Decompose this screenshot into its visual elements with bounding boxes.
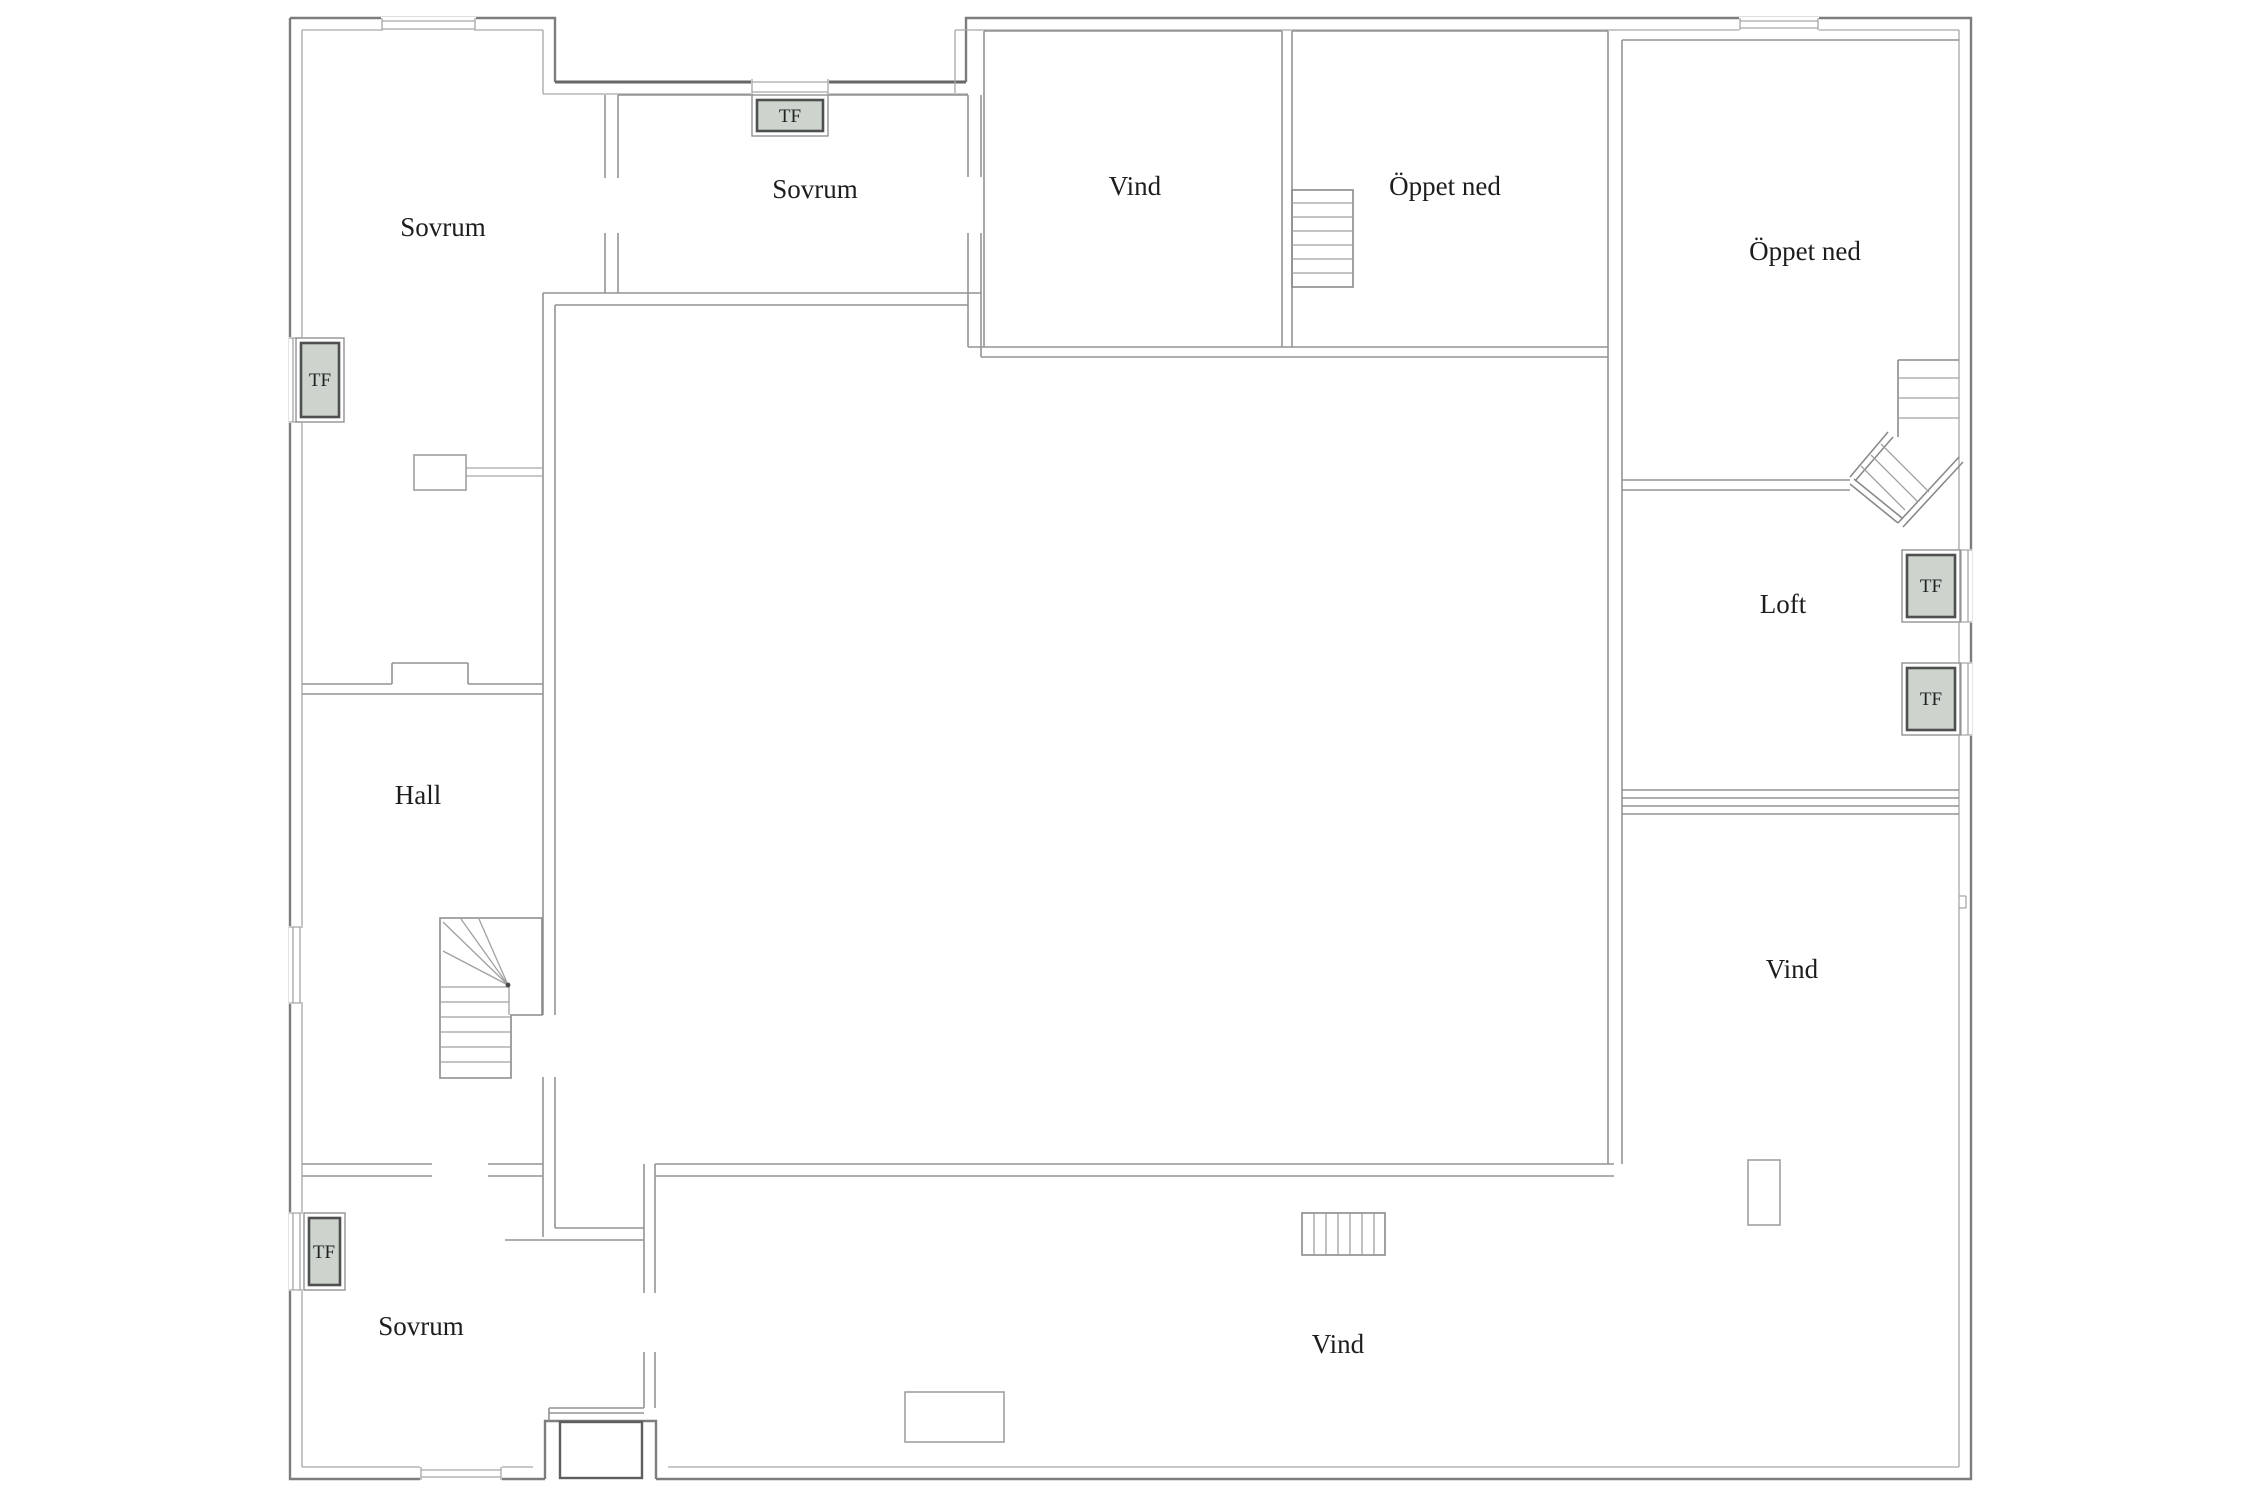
chimney-left-connector: [466, 468, 543, 476]
wall-right-jog: [1959, 896, 1966, 908]
room-label-vind-bottom: Vind: [1312, 1329, 1365, 1359]
entry-notch-inset: [560, 1422, 642, 1478]
chimney-right: [1748, 1160, 1780, 1225]
wall-central-top: [543, 293, 981, 305]
room-label-loft: Loft: [1760, 589, 1807, 619]
building-outline: [290, 18, 1971, 1479]
room-label-sovrum-top-mid: Sovrum: [772, 174, 858, 204]
stair-bottom-middle: [1302, 1213, 1385, 1255]
wall-corridor-bottom: [505, 1228, 644, 1240]
skylight-tf-left-bottom: TF: [304, 1213, 345, 1290]
wall-vind-oppet-divider: [1282, 31, 1292, 347]
wall-toprooms-bottom: [968, 347, 1608, 357]
room-label-hall: Hall: [395, 780, 442, 810]
wall-b: [644, 1164, 655, 1408]
wall-oppet-right-bottom: [1622, 480, 1850, 490]
fixtures: [392, 455, 1780, 1478]
wall-hall-right: [543, 293, 555, 1237]
skylight-tf-right-upper: TF: [1902, 550, 1960, 622]
window-top-left: [381, 17, 476, 32]
skylight-tf-right-lower: TF: [1902, 663, 1960, 735]
outline-inner-lines: [302, 30, 1959, 1467]
room-label-sovrum-top-left: Sovrum: [400, 212, 486, 242]
room-label-oppet-ned-top: Öppet ned: [1389, 171, 1501, 201]
wall-hall-bottom: [302, 1164, 543, 1176]
wall-hall-top: [302, 684, 543, 694]
wall-sovrum-mid-left: [605, 95, 618, 293]
chimney-hall-bump: [392, 663, 468, 684]
skylight-tf-left-top: TF: [296, 338, 344, 422]
room-label-oppet-ned-right: Öppet ned: [1749, 236, 1861, 266]
window-left-3: [289, 1212, 303, 1291]
chimney-left: [414, 455, 466, 490]
interior-walls: [302, 31, 1966, 1421]
wall-central-bottom: [655, 1164, 1614, 1176]
stair-hall: [440, 918, 542, 1078]
wall-loft-vind: [1622, 790, 1959, 814]
wall-sovrum-mid-right: [968, 95, 981, 357]
room-label-vind-top: Vind: [1109, 171, 1162, 201]
room-label-sovrum-bottom: Sovrum: [378, 1311, 464, 1341]
stair-top-middle: [1292, 190, 1353, 287]
floorplan-canvas: TF TF TF TF TF Sovrum Sovrum Vind Öppet …: [0, 0, 2250, 1500]
tf-label: TF: [779, 106, 801, 127]
window-top-right: [1739, 17, 1819, 31]
floorplan-drawing: TF TF TF TF TF Sovrum Sovrum Vind Öppet …: [0, 0, 2250, 1500]
wall-notch-top: [549, 1408, 644, 1421]
wall-toprooms-top: [984, 31, 1608, 347]
outline-outer: [290, 18, 1971, 1479]
stair-hall-pivot: [506, 983, 511, 988]
windows: [289, 17, 1972, 1482]
roof-hatch: [905, 1392, 1004, 1442]
room-labels: Sovrum Sovrum Vind Öppet ned Öppet ned L…: [378, 171, 1861, 1359]
stair-winder-right: [1850, 360, 1963, 527]
window-left-2: [289, 926, 303, 1004]
room-label-vind-right: Vind: [1766, 954, 1819, 984]
tf-label: TF: [1920, 576, 1942, 597]
tf-label: TF: [313, 1242, 335, 1263]
skylight-tf-top-mid: TF: [752, 95, 828, 136]
window-bottom: [420, 1466, 502, 1482]
tf-label: TF: [309, 370, 331, 391]
tf-label: TF: [1920, 689, 1942, 710]
